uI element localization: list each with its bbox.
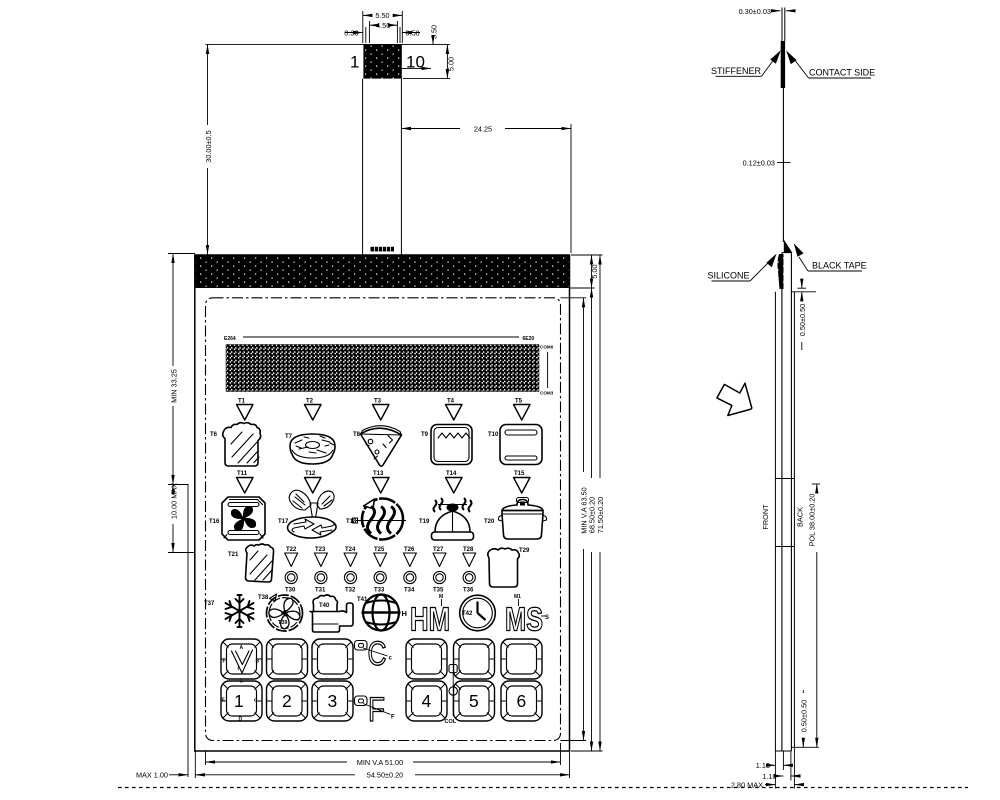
svg-text:T5: T5	[515, 399, 523, 405]
svg-text:B: B	[256, 659, 260, 665]
svg-text:1: 1	[350, 53, 359, 72]
svg-text:S: S	[545, 615, 549, 621]
svg-text:T36: T36	[463, 588, 474, 594]
svg-text:T15: T15	[514, 471, 525, 477]
svg-text:FRONT: FRONT	[761, 504, 770, 530]
svg-text:0.50±0.50: 0.50±0.50	[799, 700, 808, 732]
svg-text:5: 5	[469, 691, 479, 711]
svg-text:T17: T17	[278, 519, 289, 525]
svg-text:0.50: 0.50	[406, 29, 420, 38]
svg-text:HM: HM	[410, 601, 450, 638]
svg-text:H: H	[402, 609, 407, 618]
svg-text:4: 4	[422, 691, 432, 711]
svg-text:SILICONE: SILICONE	[707, 271, 749, 281]
svg-text:T7: T7	[285, 434, 293, 440]
svg-text:3.50: 3.50	[430, 25, 439, 39]
svg-text:CONTACT SIDE: CONTACT SIDE	[809, 68, 875, 78]
svg-text:D: D	[239, 717, 243, 723]
svg-text:71.50±0.20: 71.50±0.20	[596, 497, 605, 533]
svg-text:E264: E264	[224, 336, 236, 342]
svg-text:0.30: 0.30	[344, 29, 358, 38]
svg-text:A: A	[240, 645, 244, 651]
svg-text:T8: T8	[353, 432, 361, 438]
svg-text:COL: COL	[445, 719, 457, 725]
svg-text:C: C	[368, 635, 387, 673]
svg-text:T28: T28	[463, 547, 474, 553]
svg-text:T27: T27	[433, 547, 444, 553]
svg-text:T32: T32	[345, 588, 356, 594]
svg-text:5.00: 5.00	[590, 264, 599, 278]
svg-text:T12: T12	[305, 471, 316, 477]
svg-text:T42: T42	[462, 611, 473, 617]
svg-text:T6: T6	[210, 432, 218, 438]
svg-text:6E20: 6E20	[523, 336, 535, 342]
svg-text:T37: T37	[204, 601, 215, 607]
svg-text:COM0: COM0	[540, 345, 554, 350]
svg-text:10: 10	[406, 53, 425, 72]
svg-text:1: 1	[234, 691, 244, 711]
svg-text:T35: T35	[433, 588, 444, 594]
svg-text:T18: T18	[346, 519, 357, 525]
svg-text:COM3: COM3	[540, 391, 554, 396]
svg-text:T19: T19	[419, 519, 430, 525]
svg-text:T10: T10	[488, 432, 499, 438]
svg-text:0.12±0.03: 0.12±0.03	[743, 159, 775, 168]
svg-text:4.50: 4.50	[376, 21, 390, 30]
svg-text:6: 6	[517, 691, 527, 711]
svg-text:T23: T23	[315, 547, 326, 553]
svg-text:T29: T29	[519, 548, 530, 554]
svg-text:T40: T40	[319, 603, 330, 609]
svg-text:MS: MS	[505, 601, 543, 638]
svg-text:10.00 MAX: 10.00 MAX	[170, 483, 179, 519]
svg-text:24.25: 24.25	[474, 125, 492, 134]
svg-text:F: F	[368, 691, 385, 729]
svg-text:T13: T13	[373, 471, 384, 477]
svg-text:T24: T24	[345, 547, 356, 553]
svg-text:0.30±0.03: 0.30±0.03	[739, 7, 771, 16]
svg-text:T16: T16	[209, 519, 220, 525]
svg-text:T30: T30	[285, 588, 296, 594]
svg-text:T25: T25	[374, 547, 385, 553]
svg-text:T11: T11	[237, 471, 248, 477]
svg-text:T20: T20	[484, 519, 495, 525]
svg-text:5.50: 5.50	[375, 11, 389, 20]
svg-text:T14: T14	[446, 471, 457, 477]
svg-text:0.50±0.50: 0.50±0.50	[798, 304, 807, 336]
svg-text:T33: T33	[374, 588, 385, 594]
svg-text:M1: M1	[514, 594, 521, 600]
svg-text:T38: T38	[258, 595, 269, 601]
svg-text:54.50±0.20: 54.50±0.20	[367, 771, 403, 780]
svg-text:c: c	[254, 698, 257, 704]
svg-text:BLACK TAPE: BLACK TAPE	[812, 261, 867, 271]
svg-text:F: F	[391, 715, 395, 721]
svg-text:T31: T31	[315, 588, 326, 594]
svg-text:5.00: 5.00	[447, 57, 456, 71]
svg-text:T26: T26	[404, 547, 415, 553]
svg-text:T2: T2	[306, 399, 314, 405]
svg-text:MIN V.A 51.00: MIN V.A 51.00	[357, 758, 403, 767]
svg-text:STIFFENER: STIFFENER	[711, 66, 762, 76]
svg-text:T34: T34	[404, 588, 415, 594]
svg-text:BACK: BACK	[796, 507, 805, 527]
svg-text:30.00±0.5: 30.00±0.5	[204, 130, 213, 162]
svg-text:T39: T39	[278, 620, 287, 626]
svg-text:1.10: 1.10	[762, 772, 776, 781]
svg-text:T3: T3	[374, 399, 382, 405]
svg-text:T9: T9	[421, 432, 429, 438]
svg-text:POL 38.00±0.20: POL 38.00±0.20	[808, 494, 817, 547]
svg-text:F: F	[223, 659, 226, 665]
svg-text:3: 3	[328, 691, 338, 711]
svg-text:T4: T4	[447, 399, 455, 405]
svg-text:MIN 33.25: MIN 33.25	[170, 369, 179, 403]
svg-text:MAX 1.00: MAX 1.00	[136, 770, 168, 779]
svg-text:c: c	[389, 656, 393, 662]
svg-text:T21: T21	[228, 552, 239, 558]
svg-text:T1: T1	[238, 399, 246, 405]
svg-text:2: 2	[282, 691, 292, 711]
svg-text:T22: T22	[286, 547, 297, 553]
